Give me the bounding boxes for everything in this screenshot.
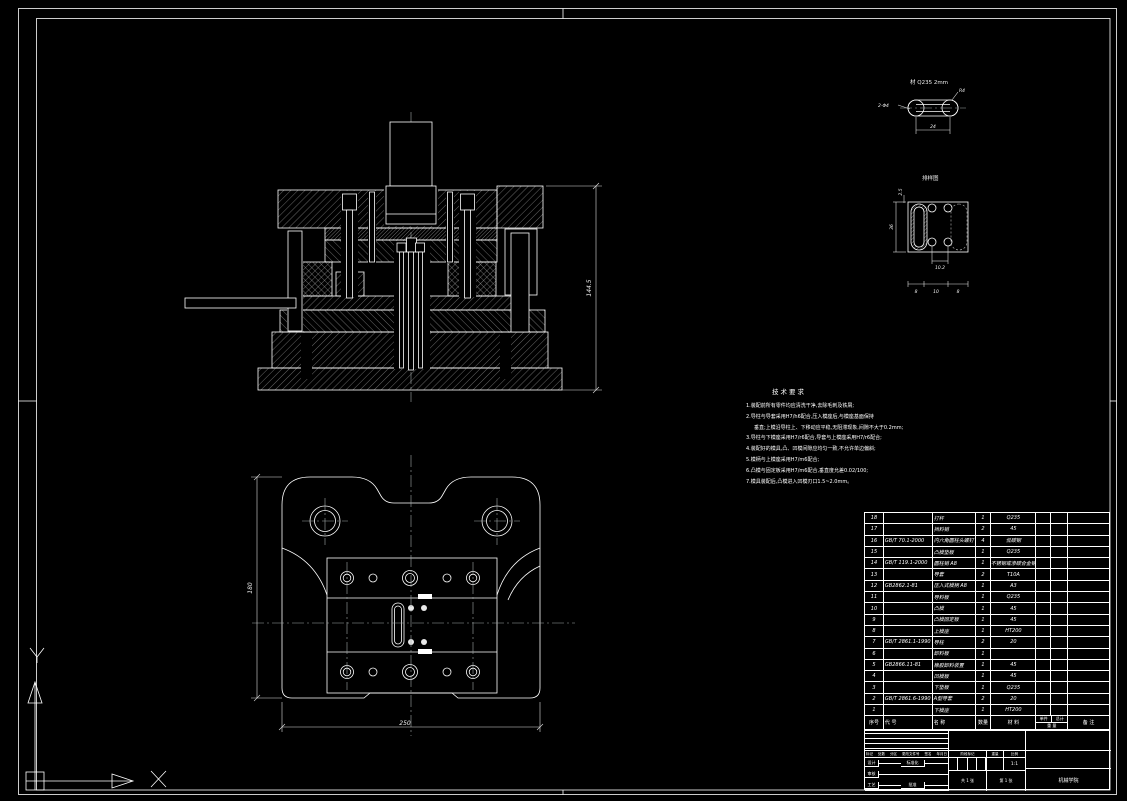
strip-margin-dim: 2.5 xyxy=(898,188,904,195)
bom-cell: 内六角圆柱头螺钉 xyxy=(933,536,976,547)
bom-cell xyxy=(1068,513,1110,524)
parts-table-row: 14GB/T 119.1-2000圆柱销 A81不锈钢或渗碳合金钢 xyxy=(865,558,1110,569)
parts-table: 18打杆1Q23517挡料销24516GB/T 70.1-2000内六角圆柱头螺… xyxy=(864,512,1110,730)
bom-cell: 凸模 xyxy=(933,603,976,614)
die-shank xyxy=(390,122,432,186)
ucs-icon xyxy=(26,648,166,790)
bom-cell xyxy=(1068,660,1110,671)
bom-cell: 不锈钢或渗碳合金钢 xyxy=(991,558,1036,569)
bom-cell: 9 xyxy=(865,615,884,626)
bom-cell: 导套 xyxy=(933,569,976,580)
bom-cell xyxy=(1036,694,1051,705)
bom-cell: 20 xyxy=(991,637,1036,648)
bom-cell xyxy=(1068,626,1110,637)
parts-table-rows: 18打杆1Q23517挡料销24516GB/T 70.1-2000内六角圆柱头螺… xyxy=(865,513,1110,716)
bom-cell: 1 xyxy=(976,558,992,569)
bom-cell xyxy=(884,682,933,693)
bom-cell xyxy=(1051,615,1068,626)
bom-cell: GB/T 2861.6-1990 xyxy=(884,694,933,705)
scale-value: 1:1 xyxy=(1004,758,1026,771)
bom-cell: 1 xyxy=(976,682,992,693)
rev-label: 更改文件号 xyxy=(902,752,920,757)
bom-cell xyxy=(884,671,933,682)
bom-cell xyxy=(1051,694,1068,705)
parts-table-row: 9凸模固定板145 xyxy=(865,615,1110,626)
bom-cell xyxy=(884,547,933,558)
bom-cell: 1 xyxy=(976,705,992,716)
bom-cell xyxy=(1051,558,1068,569)
bom-cell xyxy=(1036,682,1051,693)
revision-grid xyxy=(865,731,949,751)
bom-cell: Q235 xyxy=(991,513,1036,524)
tech-note-line: 7.模具装配后,凸模进入凹模刃口1.5~2.0mm。 xyxy=(746,477,922,488)
bom-cell: 1 xyxy=(976,615,992,626)
plan-height-dim: 180 xyxy=(247,582,254,594)
bom-cell: 压入式模柄 A8 xyxy=(933,581,976,592)
design-label: 设计 xyxy=(865,760,879,767)
parts-table-row: 6卸料板1 xyxy=(865,649,1110,660)
rev-label: 处数 xyxy=(878,752,885,757)
bom-cell xyxy=(884,705,933,716)
bom-cell: 8 xyxy=(865,626,884,637)
bom-cell xyxy=(1036,649,1051,660)
bom-cell xyxy=(1068,694,1110,705)
bom-cell xyxy=(1068,547,1110,558)
header-material: 材 料 xyxy=(991,716,1036,730)
parts-table-row: 4凹模板145 xyxy=(865,671,1110,682)
bom-cell: 1 xyxy=(976,547,992,558)
header-code: 代 号 xyxy=(884,716,933,730)
bom-cell xyxy=(1068,705,1110,716)
bom-cell: Q235 xyxy=(991,592,1036,603)
bom-cell xyxy=(1036,660,1051,671)
bom-cell: 15 xyxy=(865,547,884,558)
bom-cell xyxy=(1051,603,1068,614)
bom-cell xyxy=(1068,671,1110,682)
bom-cell xyxy=(1036,558,1051,569)
bom-cell: Q235 xyxy=(991,547,1036,558)
bom-cell: A型导套 xyxy=(933,694,976,705)
parts-table-row: 8上模座1HT200 xyxy=(865,626,1110,637)
bom-cell: 1 xyxy=(976,649,992,660)
bom-cell: HT200 xyxy=(991,705,1036,716)
weight-value xyxy=(987,758,1004,771)
bom-cell: A3 xyxy=(991,581,1036,592)
sheet-number: 第 1 张 xyxy=(987,771,1026,791)
bom-cell: 45 xyxy=(991,524,1036,535)
bom-cell xyxy=(1068,603,1110,614)
strip-width-dim: 36 xyxy=(889,224,895,230)
bom-cell: 12 xyxy=(865,581,884,592)
check-label: 审核 xyxy=(865,771,879,778)
bom-cell xyxy=(1068,569,1110,580)
bom-cell: 1 xyxy=(976,660,992,671)
guide-pillar-right xyxy=(511,233,529,332)
bom-cell: GB/T 70.1-2000 xyxy=(884,536,933,547)
workpiece-material-note: 材 Q235 2mm xyxy=(910,78,948,86)
header-remark: 备 注 xyxy=(1068,716,1110,730)
signature-grid: 设计 标准化 审核 工艺 批准 xyxy=(865,758,949,791)
weight-label: 重量 xyxy=(987,751,1004,758)
strip-spacing-a: 8 xyxy=(915,289,918,295)
bom-cell: GB2862.1-81 xyxy=(884,581,933,592)
bom-cell: 凸模垫板 xyxy=(933,547,976,558)
workpiece-detail: 材 Q235 2mm R4 2-Φ4 24 xyxy=(878,78,966,134)
bom-cell: 5 xyxy=(865,660,884,671)
parts-table-header: 序号 代 号 名 称 数量 材 料 单件 总计 重 量 备 注 xyxy=(865,716,1110,730)
bom-cell: 6 xyxy=(865,649,884,660)
bom-cell xyxy=(884,649,933,660)
parts-table-row: 16GB/T 70.1-2000内六角圆柱头螺钉4低碳钢 xyxy=(865,536,1110,547)
bom-cell: 4 xyxy=(976,536,992,547)
bom-cell xyxy=(1068,558,1110,569)
bom-cell xyxy=(1036,603,1051,614)
bom-cell xyxy=(1036,637,1051,648)
workpiece-holes-label: 2-Φ4 xyxy=(878,103,889,109)
bom-cell: 16 xyxy=(865,536,884,547)
bom-cell: 1 xyxy=(976,603,992,614)
bom-cell xyxy=(884,524,933,535)
bom-cell: 圆柱销 A8 xyxy=(933,558,976,569)
bom-cell: 挡料销 xyxy=(933,524,976,535)
bom-cell xyxy=(1068,581,1110,592)
bom-cell xyxy=(1051,660,1068,671)
bom-cell xyxy=(991,649,1036,660)
plan-view: 180 250 xyxy=(247,455,575,736)
part-name-cell xyxy=(1026,731,1111,751)
bom-cell: 1 xyxy=(976,592,992,603)
bom-cell: 45 xyxy=(991,603,1036,614)
bom-cell xyxy=(884,603,933,614)
bom-cell xyxy=(1036,581,1051,592)
rev-label: 签名 xyxy=(925,752,932,757)
technical-notes-title: 技术要求 xyxy=(772,386,922,396)
bom-cell xyxy=(1051,513,1068,524)
bom-cell xyxy=(1051,569,1068,580)
workpiece-radius-label: R4 xyxy=(959,88,965,94)
tech-note-line: 2.导柱与导套采用H7/h6配合,压入模座后,与模座基面保持 xyxy=(746,412,922,423)
parts-table-row: 1下模座1HT200 xyxy=(865,705,1110,716)
bom-cell xyxy=(884,569,933,580)
strip-spacing-c: 8 xyxy=(957,289,960,295)
bom-cell: GB/T 119.1-2000 xyxy=(884,558,933,569)
cad-drawing-sheet: 144.5 xyxy=(0,0,1127,801)
bom-cell: 11 xyxy=(865,592,884,603)
bom-cell xyxy=(1036,615,1051,626)
tech-note-line: 垂直;上模沿导柱上、下移动应平稳,无阻滞现象,间隙不大于0.2mm; xyxy=(746,423,922,434)
bom-cell: 20 xyxy=(991,694,1036,705)
bom-cell xyxy=(1036,569,1051,580)
tech-note-line: 3.导柱与下模座采用H7/r6配合,导套与上模座采用H7/r6配合; xyxy=(746,433,922,444)
plan-width-dim: 250 xyxy=(399,720,411,727)
organization-cell: 机械学院 xyxy=(1026,769,1111,791)
drawing-number-cell xyxy=(1026,751,1111,769)
bom-cell xyxy=(884,592,933,603)
rev-label: 年月日 xyxy=(937,752,948,757)
bom-cell: HT200 xyxy=(991,626,1036,637)
bom-cell: Q235 xyxy=(991,682,1036,693)
bom-cell xyxy=(1068,592,1110,603)
bom-cell xyxy=(1051,705,1068,716)
bom-cell: GB/T 2861.1-1990 xyxy=(884,637,933,648)
bom-cell: 3 xyxy=(865,682,884,693)
bom-cell xyxy=(1036,513,1051,524)
bom-cell xyxy=(1036,547,1051,558)
bom-cell xyxy=(1051,536,1068,547)
strip-layout: 排样图 2.5 36 10.2 8 10 8 xyxy=(889,174,968,295)
bom-cell: 17 xyxy=(865,524,884,535)
bom-cell xyxy=(1036,626,1051,637)
bom-cell: 2 xyxy=(865,694,884,705)
bom-cell xyxy=(1068,524,1110,535)
workpiece-length-dim: 24 xyxy=(930,124,936,130)
bom-cell: 4 xyxy=(865,671,884,682)
bom-cell: 2 xyxy=(976,694,992,705)
bom-cell xyxy=(1036,524,1051,535)
bom-cell xyxy=(1051,637,1068,648)
bom-cell xyxy=(1068,536,1110,547)
guide-pillar-left xyxy=(288,231,302,331)
bom-cell: 导柱 xyxy=(933,637,976,648)
parts-table-row: 11导料板1Q235 xyxy=(865,592,1110,603)
bom-cell xyxy=(1036,705,1051,716)
technical-notes: 技术要求 1.装配前所有零件均应清洗干净,去除毛刺及铁屑; 2.导柱与导套采用H… xyxy=(746,386,922,487)
header-weight-label: 重 量 xyxy=(1047,723,1056,729)
bom-cell: 上模座 xyxy=(933,626,976,637)
bom-cell xyxy=(1068,649,1110,660)
standard-label: 标准化 xyxy=(901,760,925,767)
bom-cell xyxy=(884,626,933,637)
bom-cell xyxy=(1036,536,1051,547)
bom-cell: 13 xyxy=(865,569,884,580)
rev-label: 标记 xyxy=(866,752,873,757)
bom-cell: 1 xyxy=(976,671,992,682)
title-block: 标记 处数 分区 更改文件号 签名 年月日 设计 标准化 审核 工艺 批准 阶段… xyxy=(864,730,1110,790)
process-label: 工艺 xyxy=(865,782,879,789)
bom-cell xyxy=(1051,649,1068,660)
bom-cell: 45 xyxy=(991,660,1036,671)
bom-cell: 1 xyxy=(976,513,992,524)
approve-label: 批准 xyxy=(901,782,925,789)
header-qty: 数量 xyxy=(976,716,992,730)
sheet-total: 共 1 张 xyxy=(949,771,987,791)
bom-cell: 2 xyxy=(976,524,992,535)
bom-cell: 1 xyxy=(865,705,884,716)
bom-cell xyxy=(1068,615,1110,626)
bom-cell xyxy=(884,615,933,626)
parts-table-row: 12GB2862.1-81压入式模柄 A81A3 xyxy=(865,581,1110,592)
parts-table-row: 7GB/T 2861.1-1990导柱220 xyxy=(865,637,1110,648)
header-weight: 单件 总计 重 量 xyxy=(1036,716,1068,730)
bom-cell: 橡胶卸料装置 xyxy=(933,660,976,671)
bom-cell xyxy=(1068,682,1110,693)
tech-note-line: 6.凸模与固定板采用H7/m6配合,垂直度允差0.02/100; xyxy=(746,466,922,477)
revision-labels: 标记 处数 分区 更改文件号 签名 年月日 xyxy=(865,751,949,758)
bom-cell xyxy=(1036,671,1051,682)
bom-cell: 7 xyxy=(865,637,884,648)
bom-cell: 1 xyxy=(976,581,992,592)
tech-note-line: 1.装配前所有零件均应清洗干净,去除毛刺及铁屑; xyxy=(746,401,922,412)
bom-cell: 凸模固定板 xyxy=(933,615,976,626)
bom-cell xyxy=(1051,581,1068,592)
bom-cell: 45 xyxy=(991,671,1036,682)
strip-spacing-b: 10 xyxy=(933,289,939,295)
bom-cell: 1 xyxy=(976,626,992,637)
bom-cell xyxy=(1051,626,1068,637)
drawing-name-cell xyxy=(949,731,1026,751)
bom-cell: 低碳钢 xyxy=(991,536,1036,547)
bom-cell: 卸料板 xyxy=(933,649,976,660)
parts-table-row: 13导套2T10A xyxy=(865,569,1110,580)
bom-cell: 导料板 xyxy=(933,592,976,603)
parts-table-row: 3下垫板1Q235 xyxy=(865,682,1110,693)
bom-cell: 下模座 xyxy=(933,705,976,716)
stage-mark-label: 阶段标记 xyxy=(949,751,987,758)
bom-cell: 2 xyxy=(976,569,992,580)
bom-cell: 下垫板 xyxy=(933,682,976,693)
bom-cell: T10A xyxy=(991,569,1036,580)
bom-cell xyxy=(884,513,933,524)
bom-cell: 18 xyxy=(865,513,884,524)
parts-table-row: 18打杆1Q235 xyxy=(865,513,1110,524)
section-view: 144.5 xyxy=(185,112,602,402)
parts-table-row: 5GB2866.11-81橡胶卸料装置145 xyxy=(865,660,1110,671)
bom-cell: 45 xyxy=(991,615,1036,626)
header-weight-unit: 单件 xyxy=(1036,716,1052,722)
parts-table-row: 17挡料销245 xyxy=(865,524,1110,535)
rev-label: 分区 xyxy=(890,752,897,757)
header-name: 名 称 xyxy=(933,716,976,730)
tech-note-line: 5.模柄与上模座采用H7/m6配合; xyxy=(746,455,922,466)
bom-cell xyxy=(1051,524,1068,535)
bom-cell: 打杆 xyxy=(933,513,976,524)
bom-cell xyxy=(1051,547,1068,558)
scale-label: 比例 xyxy=(1004,751,1026,758)
bom-cell xyxy=(1051,682,1068,693)
parts-table-row: 10凸模145 xyxy=(865,603,1110,614)
stage-mark-boxes xyxy=(949,758,987,771)
bom-cell xyxy=(1051,671,1068,682)
bom-cell: 凹模板 xyxy=(933,671,976,682)
strip-layout-title: 排样图 xyxy=(922,174,939,182)
bom-cell xyxy=(1068,637,1110,648)
parts-table-row: 15凸模垫板1Q235 xyxy=(865,547,1110,558)
bom-cell: 14 xyxy=(865,558,884,569)
parts-table-row: 2GB/T 2861.6-1990A型导套220 xyxy=(865,694,1110,705)
bom-cell: 2 xyxy=(976,637,992,648)
bom-cell: GB2866.11-81 xyxy=(884,660,933,671)
bom-cell xyxy=(1036,592,1051,603)
header-no: 序号 xyxy=(865,716,884,730)
bom-cell: 10 xyxy=(865,603,884,614)
bom-cell xyxy=(1051,592,1068,603)
section-height-dim: 144.5 xyxy=(586,279,593,296)
strip-pitch-dim: 10.2 xyxy=(935,265,945,271)
header-weight-total: 总计 xyxy=(1052,716,1067,722)
tech-note-line: 4.装配好的模具,凸、凹模间隙应均匀一致,不允许单边偏斜; xyxy=(746,444,922,455)
